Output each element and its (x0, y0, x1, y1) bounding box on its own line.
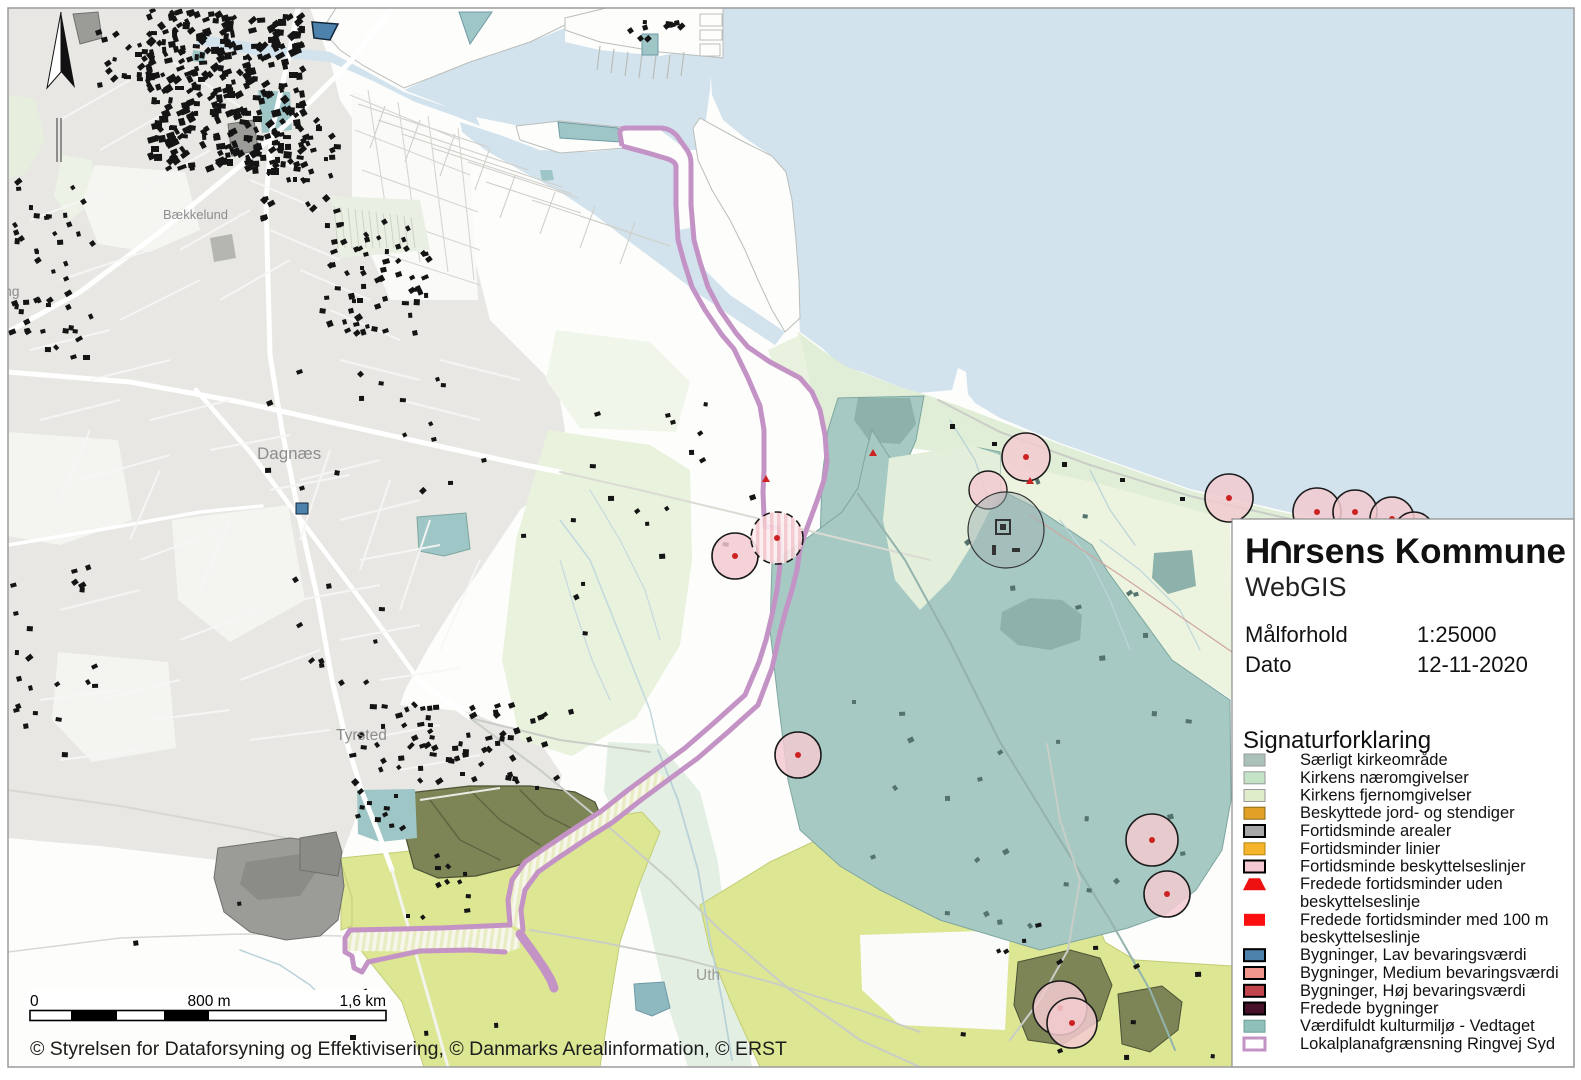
svg-text:WebGIS: WebGIS (1245, 572, 1347, 602)
svg-text:Fredede fortidsminder uden: Fredede fortidsminder uden (1300, 875, 1503, 893)
svg-text:1,6 km: 1,6 km (339, 993, 386, 1010)
svg-text:Uth: Uth (696, 967, 720, 984)
svg-text:Fortidsminde beskyttelseslinje: Fortidsminde beskyttelseslinjer (1300, 858, 1526, 876)
svg-text:Fredede fortidsminder med 100: Fredede fortidsminder med 100 m (1300, 911, 1549, 929)
svg-text:Kirkens næromgivelser: Kirkens næromgivelser (1300, 769, 1469, 787)
svg-text:Tyrsted: Tyrsted (336, 727, 387, 744)
svg-text:12-11-2020: 12-11-2020 (1417, 652, 1528, 677)
svg-text:Dagnæs: Dagnæs (257, 444, 321, 463)
svg-text:Fredede bygninger: Fredede bygninger (1300, 1000, 1439, 1018)
svg-text:Særligt kirkeområde: Særligt kirkeområde (1300, 751, 1448, 769)
svg-text:rsens Kommune: rsens Kommune (1292, 532, 1566, 571)
svg-text:Bygninger, Høj bevaringsværdi: Bygninger, Høj bevaringsværdi (1300, 982, 1526, 1000)
svg-text:Værdifuldt kulturmiljø - Vedta: Værdifuldt kulturmiljø - Vedtaget (1300, 1017, 1535, 1035)
svg-text:Beskyttede jord- og stendiger: Beskyttede jord- og stendiger (1300, 804, 1515, 822)
svg-text:Målforhold: Målforhold (1245, 622, 1348, 647)
svg-text:Kirkens fjernomgivelser: Kirkens fjernomgivelser (1300, 787, 1472, 805)
svg-text:0: 0 (30, 993, 39, 1010)
svg-text:800 m: 800 m (187, 993, 230, 1010)
svg-text:ng: ng (4, 283, 20, 299)
svg-text:Bækkelund: Bækkelund (163, 207, 228, 222)
svg-text:© Styrelsen for Dataforsyning: © Styrelsen for Dataforsyning og Effekti… (30, 1038, 787, 1060)
svg-text:Lokalplanafgrænsning Ringvej S: Lokalplanafgrænsning Ringvej Syd (1300, 1035, 1555, 1053)
svg-text:1:25000: 1:25000 (1417, 622, 1497, 647)
svg-text:Dato: Dato (1245, 652, 1291, 677)
svg-text:Fortidsminder linier: Fortidsminder linier (1300, 840, 1441, 858)
svg-text:Fortidsminde arealer: Fortidsminde arealer (1300, 822, 1452, 840)
svg-text:Bygninger, Medium bevaringsvær: Bygninger, Medium bevaringsværdi (1300, 964, 1559, 982)
svg-text:Signaturforklaring: Signaturforklaring (1243, 727, 1431, 754)
svg-text:H: H (1245, 532, 1270, 571)
svg-text:beskyttelseslinje: beskyttelseslinje (1300, 929, 1420, 947)
svg-text:Bygninger, Lav bevaringsværdi: Bygninger, Lav bevaringsværdi (1300, 946, 1527, 964)
svg-text:beskyttelseslinje: beskyttelseslinje (1300, 893, 1420, 911)
